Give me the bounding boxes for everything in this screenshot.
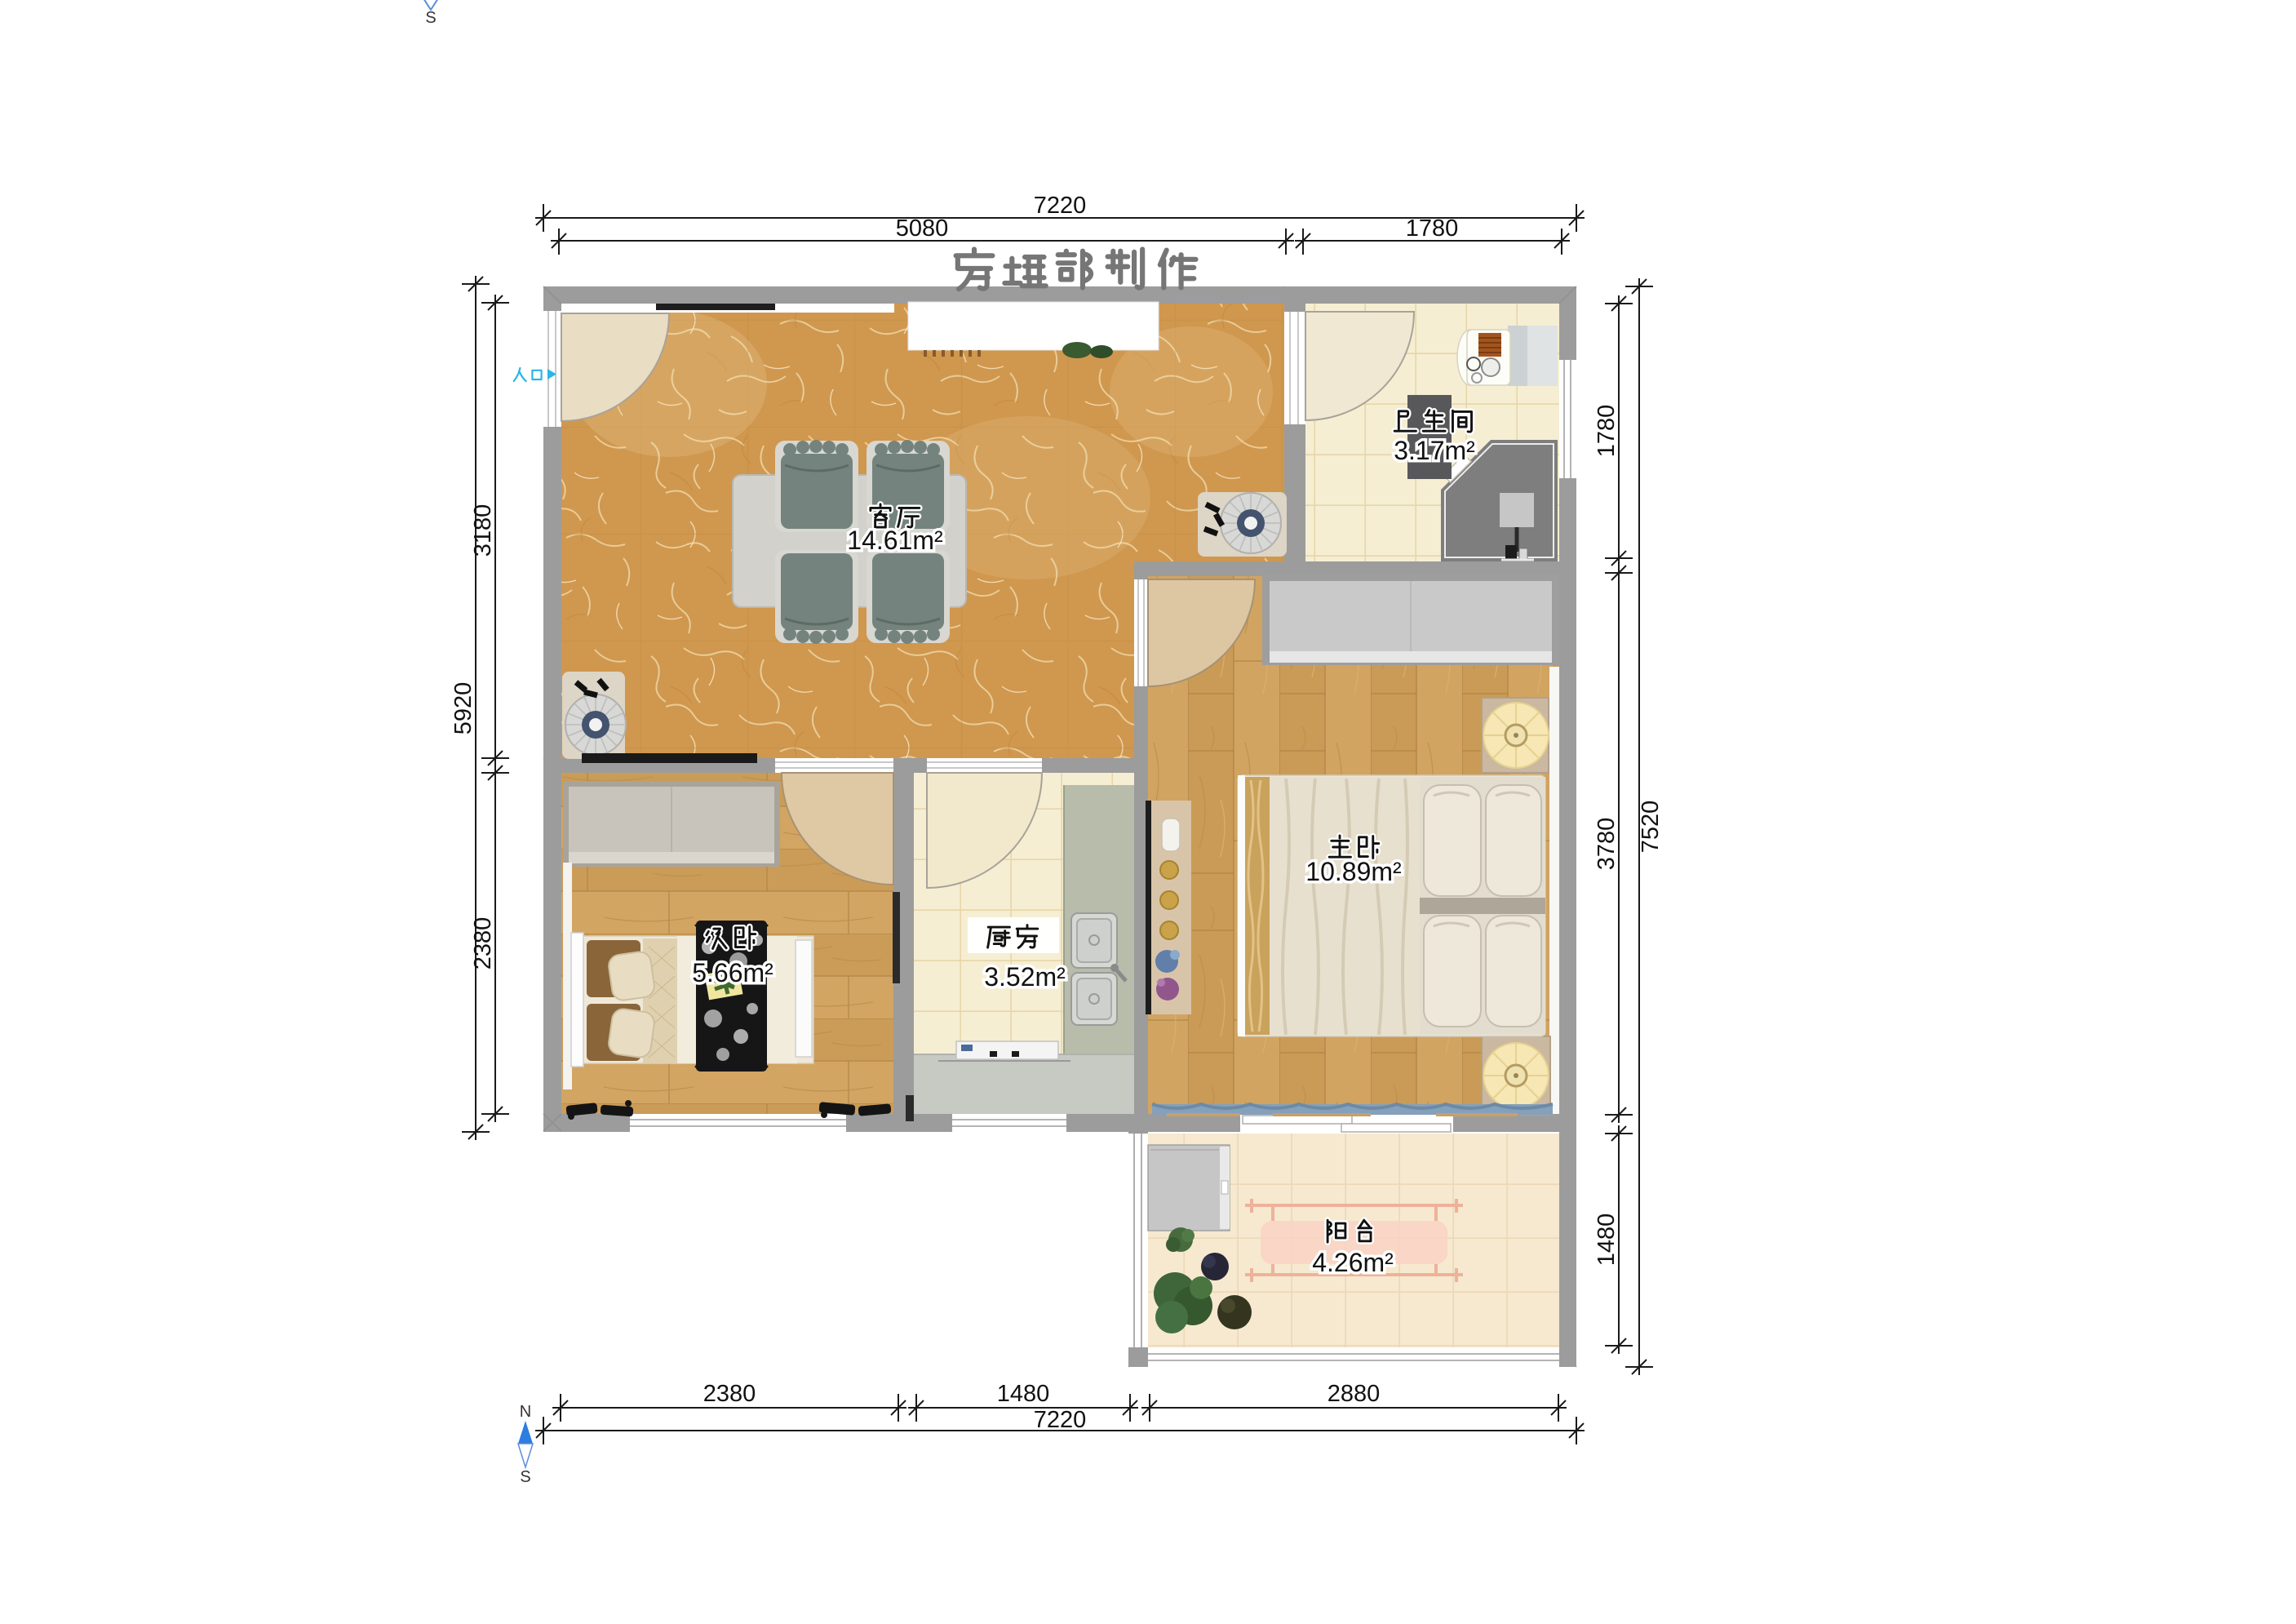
svg-text:1780: 1780 — [1593, 405, 1620, 458]
svg-text:7220: 7220 — [1034, 1407, 1087, 1433]
svg-text:3.17m²: 3.17m² — [1394, 436, 1475, 465]
svg-text:7220: 7220 — [1034, 193, 1087, 219]
svg-text:7520: 7520 — [1638, 801, 1664, 854]
svg-text:2380: 2380 — [470, 917, 496, 970]
svg-text:1480: 1480 — [1593, 1214, 1620, 1267]
svg-text:1480: 1480 — [997, 1381, 1050, 1407]
svg-text:5.66m²: 5.66m² — [692, 958, 773, 987]
svg-text:S: S — [425, 9, 436, 27]
svg-text:1780: 1780 — [1406, 215, 1459, 242]
svg-text:5920: 5920 — [450, 682, 476, 735]
svg-text:2380: 2380 — [703, 1381, 756, 1407]
svg-text:S: S — [520, 1468, 530, 1486]
svg-text:3.52m²: 3.52m² — [984, 962, 1066, 992]
svg-text:N: N — [520, 1403, 531, 1421]
svg-text:10.89m²: 10.89m² — [1305, 857, 1402, 886]
svg-text:5080: 5080 — [896, 215, 949, 242]
svg-text:14.61m²: 14.61m² — [847, 526, 943, 555]
svg-text:2880: 2880 — [1328, 1381, 1381, 1407]
svg-text:4.26m²: 4.26m² — [1312, 1248, 1394, 1277]
svg-text:3180: 3180 — [470, 504, 496, 557]
svg-text:3780: 3780 — [1593, 818, 1620, 871]
